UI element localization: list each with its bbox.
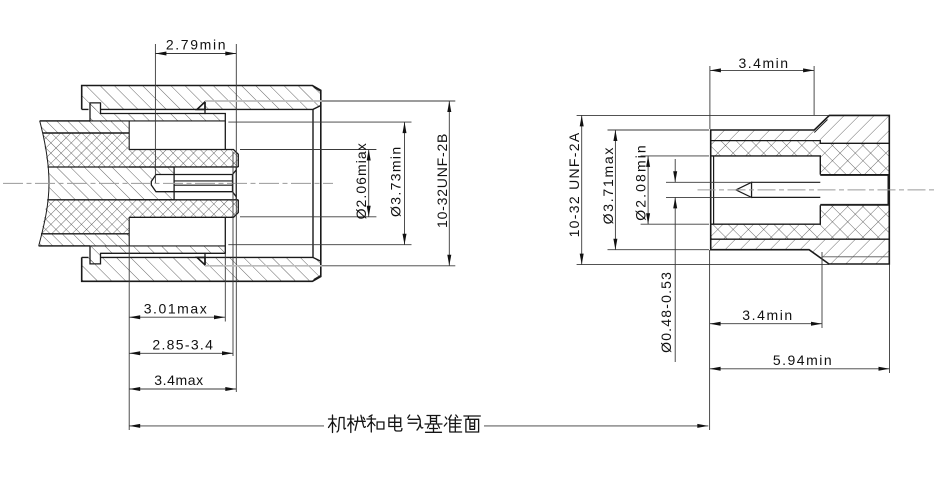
svg-text:Ø2.06miax: Ø2.06miax [353,142,369,219]
svg-text:10-32 UNF-2A: 10-32 UNF-2A [566,132,582,238]
svg-text:10-32UNF-2B: 10-32UNF-2B [434,133,450,228]
svg-text:3.4min: 3.4min [742,307,794,323]
svg-text:Ø3.71max: Ø3.71max [600,146,616,225]
svg-text:5.94min: 5.94min [773,352,833,368]
svg-text:3.4min: 3.4min [738,55,789,71]
svg-text:3.4max: 3.4max [154,372,204,388]
svg-text:2.85-3.4: 2.85-3.4 [152,336,214,352]
svg-text:Ø0.48-0.53: Ø0.48-0.53 [658,271,674,353]
svg-text:2.79min: 2.79min [166,37,227,53]
svg-text:Ø2.08min: Ø2.08min [633,143,649,221]
svg-text:Ø3.73min: Ø3.73min [388,146,404,218]
svg-text:3.01max: 3.01max [144,300,209,316]
